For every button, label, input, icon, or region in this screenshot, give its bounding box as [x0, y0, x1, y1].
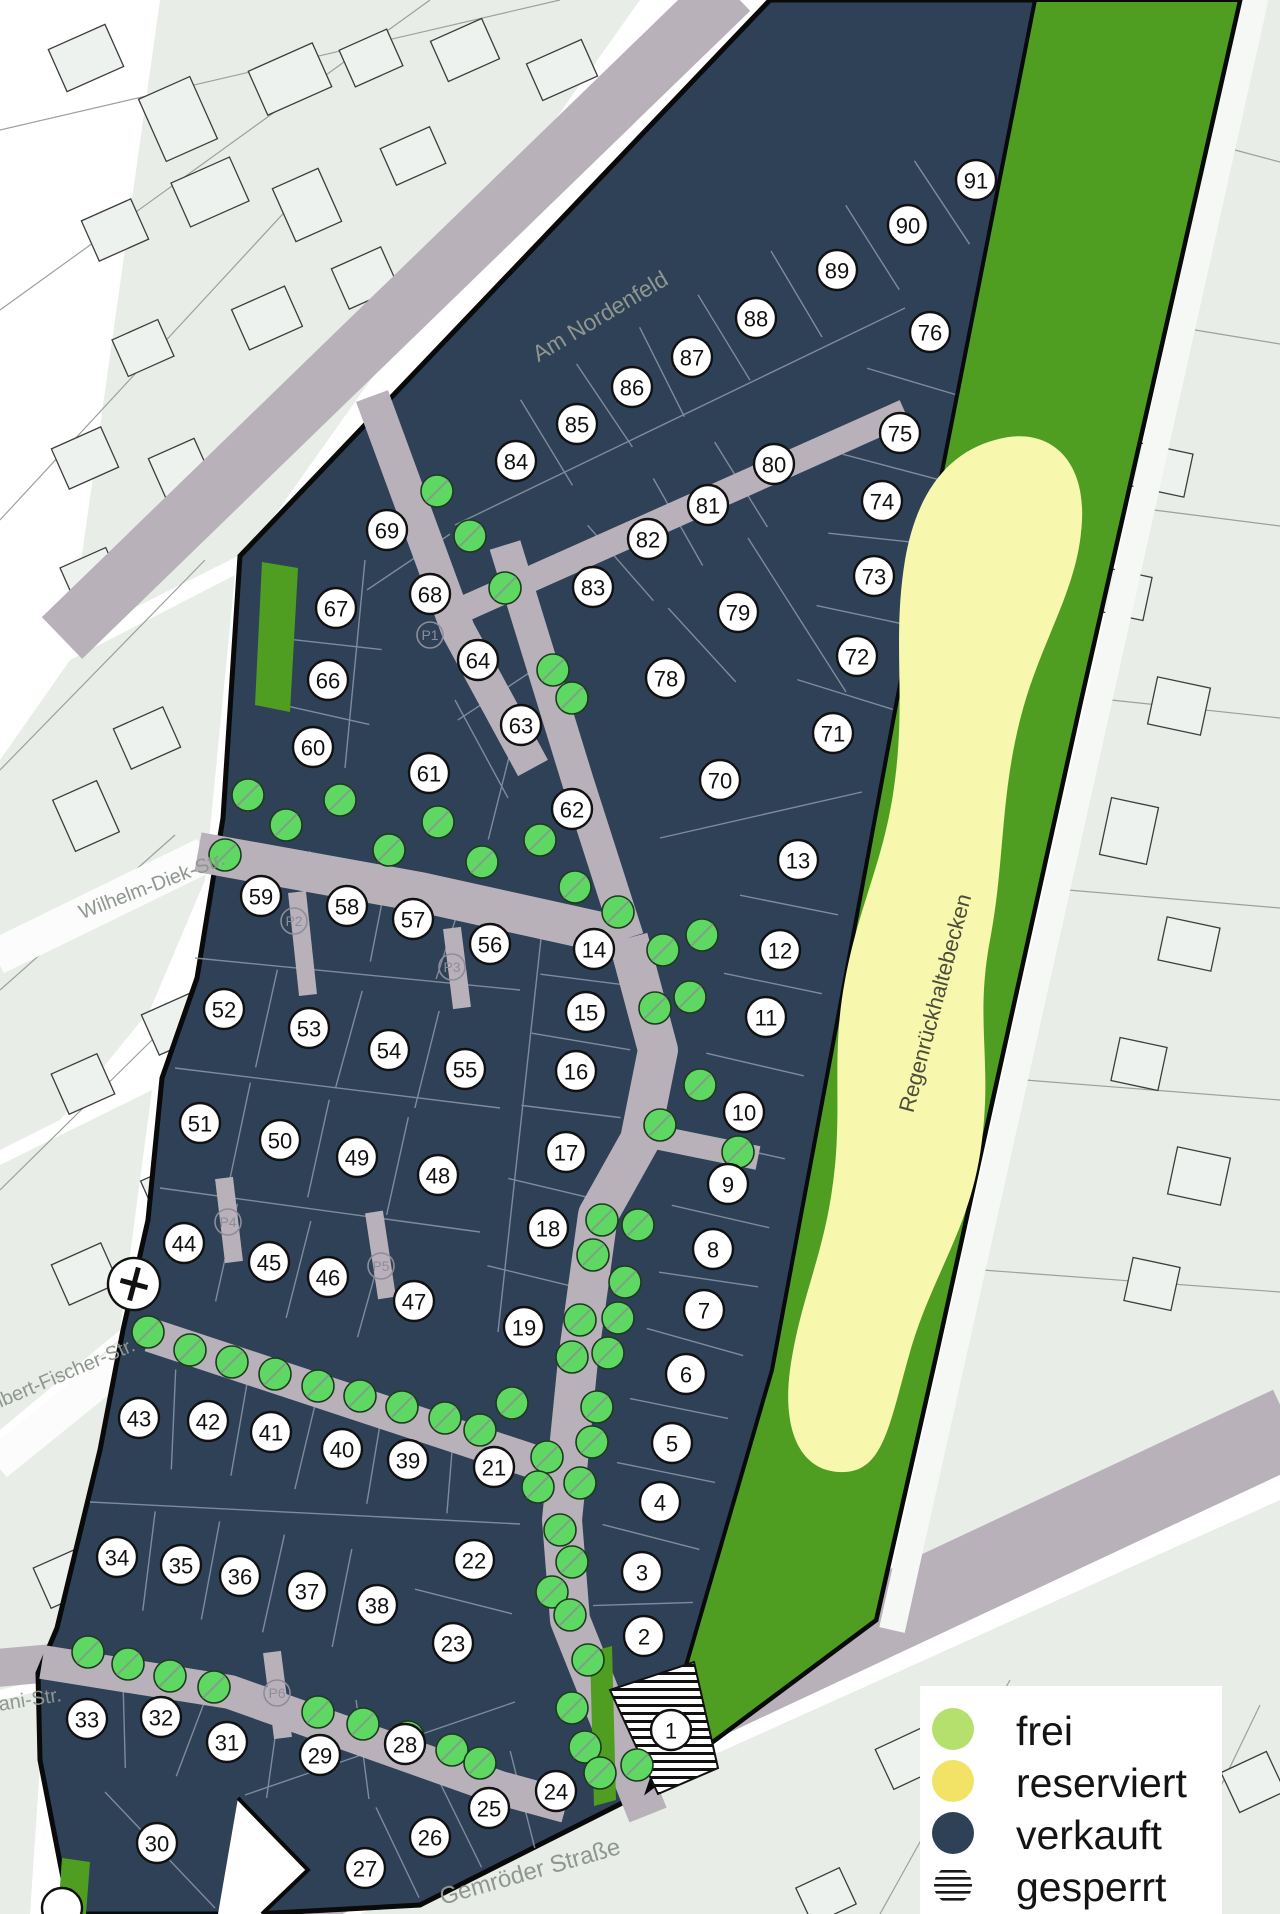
tree-icon — [639, 992, 671, 1024]
svg-text:49: 49 — [345, 1146, 369, 1171]
legend-label: reserviert — [1016, 1760, 1187, 1806]
tree-icon — [302, 1370, 334, 1402]
tree-icon — [259, 1358, 291, 1390]
plot-badge-31[interactable]: 31 — [207, 1722, 247, 1762]
plot-badge-6[interactable]: 6 — [666, 1354, 706, 1394]
tree-icon — [602, 896, 634, 928]
svg-text:47: 47 — [402, 1290, 426, 1315]
svg-text:68: 68 — [418, 583, 442, 608]
plot-badge-71[interactable]: 71 — [813, 713, 853, 753]
plot-badge-88[interactable]: 88 — [736, 298, 776, 338]
svg-text:74: 74 — [870, 490, 894, 515]
svg-text:35: 35 — [169, 1554, 193, 1579]
tree-icon — [581, 1391, 613, 1423]
plot-badge-48[interactable]: 48 — [418, 1155, 458, 1195]
svg-text:7: 7 — [698, 1299, 710, 1324]
tree-icon — [537, 654, 569, 686]
plot-badge-40[interactable]: 40 — [322, 1429, 362, 1469]
tree-icon — [621, 1749, 653, 1781]
plot-badge-57[interactable]: 57 — [393, 899, 433, 939]
plot-badge-87[interactable]: 87 — [672, 337, 712, 377]
plot-badge-79[interactable]: 79 — [718, 592, 758, 632]
svg-text:60: 60 — [301, 736, 325, 761]
tree-icon — [454, 520, 486, 552]
plot-badge-15[interactable]: 15 — [566, 992, 606, 1032]
plot-badge-24[interactable]: 24 — [536, 1771, 576, 1811]
plot-badge-51[interactable]: 51 — [180, 1103, 220, 1143]
tree-icon — [324, 784, 356, 816]
plot-badge-17[interactable]: 17 — [546, 1132, 586, 1172]
plot-badge-27[interactable]: 27 — [345, 1848, 385, 1888]
plot-badge-74[interactable]: 74 — [862, 481, 902, 521]
plot-badge-64[interactable]: 64 — [458, 640, 498, 680]
plot-badge-67[interactable]: 67 — [316, 588, 356, 628]
plot-badge-5[interactable]: 5 — [652, 1423, 692, 1463]
tree-icon — [556, 1546, 588, 1578]
legend: freireserviertverkauftgesperrt — [920, 1686, 1222, 1914]
svg-text:44: 44 — [172, 1232, 196, 1257]
svg-text:81: 81 — [696, 494, 720, 519]
svg-text:85: 85 — [565, 413, 589, 438]
plot-badge-53[interactable]: 53 — [289, 1008, 329, 1048]
tree-icon — [576, 1426, 608, 1458]
plot-badge-70[interactable]: 70 — [700, 760, 740, 800]
plot-badge-63[interactable]: 63 — [501, 705, 541, 745]
tree-icon — [674, 981, 706, 1013]
svg-text:51: 51 — [188, 1112, 212, 1137]
svg-text:32: 32 — [149, 1706, 173, 1731]
tree-icon — [232, 779, 264, 811]
svg-text:10: 10 — [732, 1101, 756, 1126]
plot-badge-85[interactable]: 85 — [557, 404, 597, 444]
plot-badge-46[interactable]: 46 — [308, 1257, 348, 1297]
svg-text:21: 21 — [482, 1456, 506, 1481]
svg-text:70: 70 — [708, 769, 732, 794]
tree-icon — [564, 1304, 596, 1336]
svg-text:91: 91 — [964, 169, 988, 194]
tree-icon — [496, 1387, 528, 1419]
plot-badge-45[interactable]: 45 — [249, 1242, 289, 1282]
svg-text:76: 76 — [918, 321, 942, 346]
plot-badge-35[interactable]: 35 — [161, 1545, 201, 1585]
plot-badge-16[interactable]: 16 — [556, 1051, 596, 1091]
svg-text:83: 83 — [581, 576, 605, 601]
plot-badge-81[interactable]: 81 — [688, 485, 728, 525]
svg-text:67: 67 — [324, 597, 348, 622]
tree-icon — [559, 871, 591, 903]
tree-icon — [429, 1402, 461, 1434]
svg-text:38: 38 — [365, 1594, 389, 1619]
plot-badge-23[interactable]: 23 — [433, 1623, 473, 1663]
svg-text:2: 2 — [638, 1625, 650, 1650]
plot-badge-44[interactable]: 44 — [164, 1223, 204, 1263]
tree-icon — [154, 1660, 186, 1692]
tree-icon — [647, 934, 679, 966]
plot-badge-18[interactable]: 18 — [528, 1208, 568, 1248]
plot-badge-80[interactable]: 80 — [754, 444, 794, 484]
plot-badge-56[interactable]: 56 — [470, 924, 510, 964]
svg-text:54: 54 — [377, 1039, 401, 1064]
tree-icon — [524, 824, 556, 856]
tree-icon — [577, 1239, 609, 1271]
svg-text:75: 75 — [888, 422, 912, 447]
svg-text:43: 43 — [127, 1407, 151, 1432]
plot-badge-59[interactable]: 59 — [241, 876, 281, 916]
tree-icon — [531, 1441, 563, 1473]
tree-icon — [132, 1316, 164, 1348]
svg-text:9: 9 — [722, 1173, 734, 1198]
svg-text:58: 58 — [335, 895, 359, 920]
plot-badge-42[interactable]: 42 — [188, 1401, 228, 1441]
plot-badge-28[interactable]: 28 — [385, 1724, 425, 1764]
tree-icon — [422, 806, 454, 838]
svg-text:P3: P3 — [443, 959, 460, 975]
plot-badge-58[interactable]: 58 — [327, 886, 367, 926]
plot-badge-32[interactable]: 32 — [141, 1697, 181, 1737]
svg-text:64: 64 — [466, 649, 490, 674]
tree-icon — [72, 1636, 104, 1668]
plot-badge-8[interactable]: 8 — [693, 1229, 733, 1269]
svg-text:26: 26 — [418, 1826, 442, 1851]
plot-badge-14[interactable]: 14 — [574, 929, 614, 969]
plot-badge-13[interactable]: 13 — [778, 840, 818, 880]
svg-text:48: 48 — [426, 1164, 450, 1189]
legend-swatch-verkauft — [932, 1812, 974, 1854]
svg-text:P6: P6 — [268, 1685, 285, 1701]
tree-icon — [586, 1204, 618, 1236]
plot-badge-19[interactable]: 19 — [504, 1307, 544, 1347]
svg-text:15: 15 — [574, 1001, 598, 1026]
svg-text:90: 90 — [896, 214, 920, 239]
svg-text:78: 78 — [654, 667, 678, 692]
tree-icon — [489, 572, 521, 604]
site-plan-page: P1P2P3P4P5P6 919089888786858476757473727… — [0, 0, 1280, 1914]
svg-text:63: 63 — [509, 714, 533, 739]
tree-icon — [564, 1467, 596, 1499]
road-stub-p2 — [297, 892, 308, 995]
svg-text:66: 66 — [316, 669, 340, 694]
tree-icon — [466, 846, 498, 878]
tree-icon — [544, 1514, 576, 1546]
tree-icon — [436, 1734, 468, 1766]
svg-text:88: 88 — [744, 307, 768, 332]
svg-text:36: 36 — [228, 1565, 252, 1590]
plot-badge-91[interactable]: 91 — [956, 160, 996, 200]
svg-text:6: 6 — [680, 1363, 692, 1388]
svg-text:80: 80 — [762, 453, 786, 478]
road-stub-p5 — [374, 1212, 387, 1298]
plot-badge-55[interactable]: 55 — [445, 1049, 485, 1089]
svg-text:39: 39 — [396, 1449, 420, 1474]
tree-icon — [684, 1069, 716, 1101]
tree-icon — [216, 1346, 248, 1378]
plot-badge-25[interactable]: 25 — [469, 1788, 509, 1828]
plan-map[interactable]: P1P2P3P4P5P6 919089888786858476757473727… — [0, 0, 1280, 1914]
plot-badge-50[interactable]: 50 — [260, 1120, 300, 1160]
plot-badge-47[interactable]: 47 — [394, 1281, 434, 1321]
plot-badge-72[interactable]: 72 — [837, 636, 877, 676]
plot-badge-49[interactable]: 49 — [337, 1137, 377, 1177]
plot-badge-75[interactable]: 75 — [880, 413, 920, 453]
svg-text:3: 3 — [636, 1561, 648, 1586]
tree-icon — [112, 1648, 144, 1680]
svg-text:24: 24 — [544, 1780, 568, 1805]
svg-text:59: 59 — [249, 885, 273, 910]
svg-text:18: 18 — [536, 1217, 560, 1242]
svg-text:33: 33 — [75, 1708, 99, 1733]
svg-text:73: 73 — [862, 565, 886, 590]
svg-text:25: 25 — [477, 1797, 501, 1822]
legend-swatch-gesperrt — [934, 1866, 972, 1904]
plot-badge-3[interactable]: 3 — [622, 1552, 662, 1592]
svg-text:P1: P1 — [421, 627, 438, 643]
svg-text:79: 79 — [726, 601, 750, 626]
svg-text:28: 28 — [393, 1733, 417, 1758]
tree-icon — [421, 475, 453, 507]
plot-badge-33[interactable]: 33 — [67, 1699, 107, 1739]
svg-text:71: 71 — [821, 722, 845, 747]
svg-text:40: 40 — [330, 1438, 354, 1463]
tree-icon — [464, 1414, 496, 1446]
svg-text:72: 72 — [845, 645, 869, 670]
plot-badge-36[interactable]: 36 — [220, 1556, 260, 1596]
plot-badge-41[interactable]: 41 — [251, 1412, 291, 1452]
plot-badge-68[interactable]: 68 — [410, 574, 450, 614]
svg-text:55: 55 — [453, 1058, 477, 1083]
plot-badge-83[interactable]: 83 — [573, 567, 613, 607]
tree-icon — [602, 1302, 634, 1334]
svg-text:5: 5 — [666, 1432, 678, 1457]
tree-icon — [198, 1671, 230, 1703]
legend-label: frei — [1016, 1708, 1073, 1754]
legend-swatch-reserviert — [932, 1760, 974, 1802]
plot-badge-26[interactable]: 26 — [410, 1817, 450, 1857]
plot-badge-82[interactable]: 82 — [628, 519, 668, 559]
legend-label: gesperrt — [1016, 1864, 1167, 1910]
tree-icon — [572, 1644, 604, 1676]
svg-text:11: 11 — [755, 1006, 778, 1031]
plot-badge-12[interactable]: 12 — [760, 930, 800, 970]
plot-badge-37[interactable]: 37 — [287, 1571, 327, 1611]
svg-text:61: 61 — [417, 762, 441, 787]
plot-badge-21[interactable]: 21 — [474, 1447, 514, 1487]
plot-badge-60[interactable]: 60 — [293, 727, 333, 767]
svg-text:34: 34 — [105, 1546, 129, 1571]
plot-badge-76[interactable]: 76 — [910, 312, 950, 352]
plot-badge-11[interactable]: 11 — [746, 997, 786, 1037]
svg-text:86: 86 — [620, 376, 644, 401]
plot-badge-7[interactable]: 7 — [684, 1290, 724, 1330]
svg-text:13: 13 — [786, 849, 810, 874]
svg-text:16: 16 — [564, 1060, 588, 1085]
svg-text:62: 62 — [560, 798, 584, 823]
plot-badge-43[interactable]: 43 — [119, 1398, 159, 1438]
svg-text:P4: P4 — [219, 1214, 236, 1230]
svg-text:52: 52 — [212, 998, 236, 1023]
background-house-outline — [1124, 1257, 1180, 1310]
svg-text:23: 23 — [441, 1632, 465, 1657]
svg-text:27: 27 — [353, 1857, 377, 1882]
svg-text:37: 37 — [295, 1580, 319, 1605]
plot-badge-69[interactable]: 69 — [367, 510, 407, 550]
plot-badge-38[interactable]: 38 — [357, 1585, 397, 1625]
tree-icon — [522, 1471, 554, 1503]
svg-text:57: 57 — [401, 908, 425, 933]
plot-badge-29[interactable]: 29 — [300, 1735, 340, 1775]
plot-badge-10[interactable]: 10 — [724, 1092, 764, 1132]
tree-icon — [373, 834, 405, 866]
tree-icon — [554, 1599, 586, 1631]
plot-badge-4[interactable]: 4 — [640, 1482, 680, 1522]
svg-text:42: 42 — [196, 1410, 220, 1435]
svg-text:29: 29 — [308, 1744, 332, 1769]
svg-text:1: 1 — [665, 1719, 677, 1744]
svg-text:14: 14 — [582, 938, 606, 963]
background-house-outline — [1168, 1147, 1231, 1205]
tree-icon — [592, 1337, 624, 1369]
plot-badge-66[interactable]: 66 — [308, 660, 348, 700]
tree-icon — [464, 1747, 496, 1779]
tree-icon — [302, 1696, 334, 1728]
tree-icon — [174, 1334, 206, 1366]
svg-text:4: 4 — [654, 1491, 666, 1516]
svg-text:50: 50 — [268, 1129, 292, 1154]
svg-text:46: 46 — [316, 1266, 340, 1291]
svg-text:17: 17 — [554, 1141, 578, 1166]
svg-text:31: 31 — [215, 1731, 239, 1756]
svg-text:P5: P5 — [372, 1258, 389, 1274]
tree-icon — [556, 1692, 588, 1724]
svg-text:19: 19 — [512, 1316, 536, 1341]
svg-text:82: 82 — [636, 528, 660, 553]
plot-badge-62[interactable]: 62 — [552, 789, 592, 829]
tree-icon — [556, 1341, 588, 1373]
plot-badge-2[interactable]: 2 — [624, 1616, 664, 1656]
svg-text:8: 8 — [707, 1238, 719, 1263]
svg-text:84: 84 — [504, 450, 528, 475]
tree-icon — [622, 1209, 654, 1241]
legend-label: verkauft — [1016, 1812, 1162, 1858]
tree-icon — [609, 1266, 641, 1298]
tree-icon — [386, 1391, 418, 1423]
plot-badge-84[interactable]: 84 — [496, 441, 536, 481]
plot-badge-73[interactable]: 73 — [854, 556, 894, 596]
plot-badge-30[interactable]: 30 — [137, 1823, 177, 1863]
svg-text:41: 41 — [259, 1421, 283, 1446]
svg-text:12: 12 — [768, 939, 792, 964]
svg-text:P2: P2 — [285, 913, 302, 929]
tree-icon — [644, 1109, 676, 1141]
tree-icon — [347, 1708, 379, 1740]
svg-text:87: 87 — [680, 346, 704, 371]
tree-icon — [344, 1380, 376, 1412]
plot-badge-61[interactable]: 61 — [409, 753, 449, 793]
svg-text:22: 22 — [462, 1549, 486, 1574]
tree-icon — [584, 1757, 616, 1789]
svg-text:69: 69 — [375, 519, 399, 544]
background-house-outline — [1148, 677, 1211, 735]
svg-text:89: 89 — [825, 259, 849, 284]
plot-badge-9[interactable]: 9 — [708, 1164, 748, 1204]
legend-swatch-frei — [932, 1708, 974, 1750]
tree-icon — [270, 809, 302, 841]
plot-badge-54[interactable]: 54 — [369, 1030, 409, 1070]
svg-text:56: 56 — [478, 933, 502, 958]
plot-badge-52[interactable]: 52 — [204, 989, 244, 1029]
svg-text:45: 45 — [257, 1251, 281, 1276]
plot-badge-89[interactable]: 89 — [817, 250, 857, 290]
svg-text:53: 53 — [297, 1017, 321, 1042]
plot-badge-86[interactable]: 86 — [612, 367, 652, 407]
plot-badge-90[interactable]: 90 — [888, 205, 928, 245]
background-house-outline — [1111, 1037, 1167, 1090]
plot-badge-39[interactable]: 39 — [388, 1440, 428, 1480]
plot-badge-34[interactable]: 34 — [97, 1537, 137, 1577]
svg-text:30: 30 — [145, 1832, 169, 1857]
tree-icon — [686, 919, 718, 951]
plot-badge-78[interactable]: 78 — [646, 658, 686, 698]
plot-badge-22[interactable]: 22 — [454, 1540, 494, 1580]
plot-badge-1[interactable]: 1 — [651, 1710, 691, 1750]
tree-icon — [556, 682, 588, 714]
